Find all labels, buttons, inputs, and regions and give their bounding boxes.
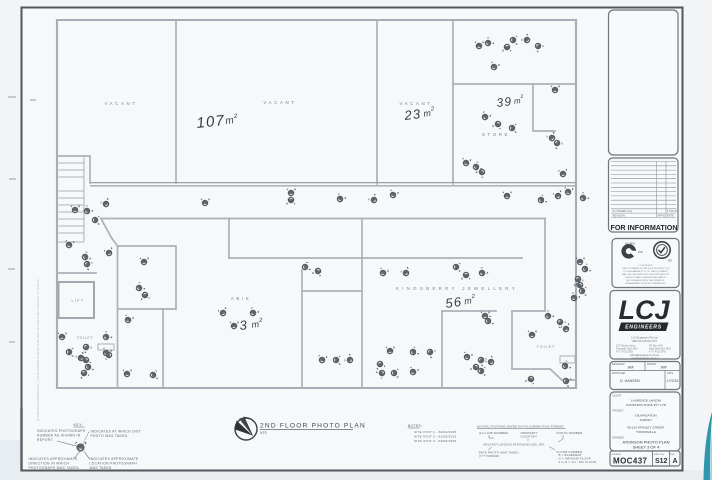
svg-text:23: 23	[403, 106, 423, 123]
svg-text:VACANT: VACANT	[263, 100, 296, 105]
svg-text:SITE VISIT 1 - 30/04/2015: SITE VISIT 1 - 30/04/2015	[414, 430, 457, 434]
svg-text:2: 2	[258, 317, 264, 324]
svg-text:VACANT: VACANT	[399, 101, 432, 106]
svg-text:DATE: DATE	[667, 372, 674, 375]
svg-text:APP'D: APP'D	[658, 214, 666, 218]
svg-text:SHEET 3 OF 4: SHEET 3 OF 4	[633, 445, 660, 450]
svg-text:REVISION: REVISION	[613, 214, 626, 218]
svg-text:admin@lcjengineers.com.au: admin@lcjengineers.com.au	[630, 354, 660, 357]
svg-text:MAY ONLY BE USED FOR THE PURPO: MAY ONLY BE USED FOR THE PURPOSE FOR	[622, 273, 669, 276]
svg-text:MOC437-LANCINI ATKINSON-302.JP: MOC437-LANCINI ATKINSON-302.JPG	[484, 443, 546, 447]
svg-text:3: 3	[239, 317, 249, 333]
svg-text:D. HANSEN: D. HANSEN	[620, 379, 640, 383]
svg-text:DILAPIDATION: DILAPIDATION	[635, 414, 656, 418]
svg-text:SITE VISIT 2 - 01/05/2015: SITE VISIT 2 - 01/05/2015	[414, 435, 457, 439]
svg-text:JMF: JMF	[627, 366, 635, 370]
svg-text:APPROVED: APPROVED	[612, 372, 626, 375]
svg-text:LIFT: LIFT	[72, 299, 85, 303]
svg-text:TOILET: TOILET	[537, 345, 556, 349]
svg-text:Townsville QLD 4810: Townsville QLD 4810	[616, 349, 638, 351]
svg-text:JMF: JMF	[660, 366, 668, 370]
svg-text:56: 56	[444, 294, 463, 311]
svg-text:DRAWN: DRAWN	[647, 363, 656, 366]
svg-text:SHEET No.: SHEET No.	[654, 454, 666, 456]
svg-text:LCJ: LCJ	[618, 295, 670, 325]
svg-text:DESIGNED: DESIGNED	[612, 363, 625, 366]
svg-text:(YYYYMMDD): (YYYYMMDD)	[479, 454, 500, 458]
svg-text:WAS TAKEN: WAS TAKEN	[90, 466, 112, 470]
svg-text:NOTES:: NOTES:	[408, 424, 423, 428]
svg-text:KEY:: KEY:	[74, 423, 84, 427]
svg-text:NTS: NTS	[260, 431, 268, 435]
svg-text:LCJ ENGINEERS PTY LTD. THE DOC: LCJ ENGINEERS PTY LTD. THE DOCUMENT	[623, 271, 668, 273]
svg-text:CONSTRUCTIONS PTY LTD: CONSTRUCTIONS PTY LTD	[626, 403, 667, 407]
svg-text:VACANT: VACANT	[104, 101, 137, 106]
svg-text:2: 2	[470, 294, 476, 301]
svg-text:LOCATION PHOTOGRAPH: LOCATION PHOTOGRAPH	[90, 461, 138, 465]
svg-text:REPORT: REPORT	[37, 438, 53, 442]
svg-text:17/9/15: 17/9/15	[667, 379, 679, 383]
svg-text:TOILET: TOILET	[77, 336, 94, 340]
svg-text:Hyde Park QLD 4812: Hyde Park QLD 4812	[649, 348, 672, 351]
svg-text:PHOTO NUMBER: PHOTO NUMBER	[557, 431, 583, 435]
svg-text:KINGSBERRY JEWELLERY: KINGSBERRY JEWELLERY	[396, 286, 518, 291]
svg-text:MOC437: MOC437	[613, 457, 648, 466]
svg-text:DIRECTION IN WHICH: DIRECTION IN WHICH	[29, 461, 70, 465]
svg-text:ENGINEERS: ENGINEERS	[625, 325, 662, 331]
svg-text:FOR INFORMATION: FOR INFORMATION	[611, 223, 678, 232]
svg-text:www.lcjengineers.com.au: www.lcjengineers.com.au	[632, 357, 659, 360]
svg-text:TOWNSVILLE: TOWNSVILLE	[636, 430, 656, 434]
svg-text:39: 39	[496, 94, 513, 110]
svg-text:G:\MOC437\CAD\MOC437_S12 ATKIN: G:\MOC437\CAD\MOC437_S12 ATKINSON PHOTO …	[36, 279, 40, 421]
svg-text:SITE VISIT 3 - 02/06/2015: SITE VISIT 3 - 02/06/2015	[414, 439, 457, 443]
svg-text:NUMBER AS SHOWN IN: NUMBER AS SHOWN IN	[37, 433, 81, 437]
svg-text:17.09.15: 17.09.15	[667, 209, 678, 213]
svg-text:F: 07 4721 5745: F: 07 4721 5745	[649, 352, 666, 354]
svg-text:107: 107	[196, 112, 226, 132]
svg-text:95-114 STANLEY STREET: 95-114 STANLEY STREET	[627, 426, 664, 430]
svg-text:ACCORDANCE WITH THE TERMS OF: ACCORDANCE WITH THE TERMS OF	[627, 279, 665, 282]
svg-text:INDICATES APPROXIMATE: INDICATES APPROXIMATE	[29, 457, 78, 461]
svg-text:DIGITAL FOOTAGE SAVED IN FOLLO: DIGITAL FOOTAGE SAVED IN FOLLOWING FILE …	[477, 424, 564, 428]
svg-text:P: 07 4721 5655: P: 07 4721 5655	[616, 352, 634, 354]
svg-text:REV: REV	[671, 454, 676, 456]
svg-text:ISO: ISO	[668, 260, 672, 263]
svg-text:INDICATES AT WHICH DIST: INDICATES AT WHICH DIST	[91, 430, 142, 434]
svg-text:WHICH IT WAS COMMISSIONED AND: WHICH IT WAS COMMISSIONED AND IN	[625, 276, 666, 279]
svg-text:LAURENCE LANCINI: LAURENCE LANCINI	[631, 399, 661, 403]
svg-text:INDICATES APPROXIMATE: INDICATES APPROXIMATE	[90, 457, 139, 461]
svg-text:LCJ Engineers Pty Ltd: LCJ Engineers Pty Ltd	[631, 336, 658, 340]
svg-text:PHOTO WAS TAKEN: PHOTO WAS TAKEN	[91, 434, 128, 438]
svg-text:ABIS: ABIS	[231, 296, 251, 301]
svg-text:ENGAGEMENT FOR THE COMMISSION.: ENGAGEMENT FOR THE COMMISSION.	[625, 282, 666, 285]
svg-text:A: A	[673, 458, 678, 465]
svg-text:CLIENT: CLIENT	[613, 395, 622, 398]
svg-text:INDICATES PHOTOGRAPH: INDICATES PHOTOGRAPH	[37, 429, 86, 433]
svg-text:2: 2	[519, 94, 525, 101]
svg-text:PROJECT: PROJECT	[613, 410, 625, 413]
svg-text:257 Flinders Street: 257 Flinders Street	[616, 345, 636, 348]
svg-text:PHOTOGRAPH WAS TAKEN: PHOTOGRAPH WAS TAKEN	[29, 466, 80, 470]
svg-text:THIS DOCUMENT IS THE SOLE PROP: THIS DOCUMENT IS THE SOLE PROPERTY OF	[622, 268, 670, 270]
svg-text:2ND FLOOR PHOTO PLAN: 2ND FLOOR PHOTO PLAN	[260, 422, 366, 429]
svg-text:SURVEY: SURVEY	[640, 418, 653, 422]
svg-text:DATE: DATE	[667, 214, 674, 218]
svg-text:2: 2	[233, 114, 239, 121]
svg-text:S12: S12	[655, 458, 668, 465]
svg-text:2: 2	[430, 106, 436, 113]
svg-text:ABN 96 108 614 672: ABN 96 108 614 672	[632, 339, 657, 343]
svg-text:P1 ISSUED [xxx]: P1 ISSUED [xxx]	[613, 209, 633, 213]
svg-text:© COPYRIGHT: © COPYRIGHT	[638, 264, 654, 267]
svg-text:(LCJ JOB NUMBER): (LCJ JOB NUMBER)	[479, 431, 509, 435]
svg-text:PO Box 1443: PO Box 1443	[649, 346, 663, 348]
svg-text:1 to N = 1st - Nth FLOOR: 1 to N = 1st - Nth FLOOR	[559, 460, 597, 464]
svg-text:LOCATION: LOCATION	[521, 434, 537, 438]
svg-text:STORE: STORE	[482, 132, 510, 137]
